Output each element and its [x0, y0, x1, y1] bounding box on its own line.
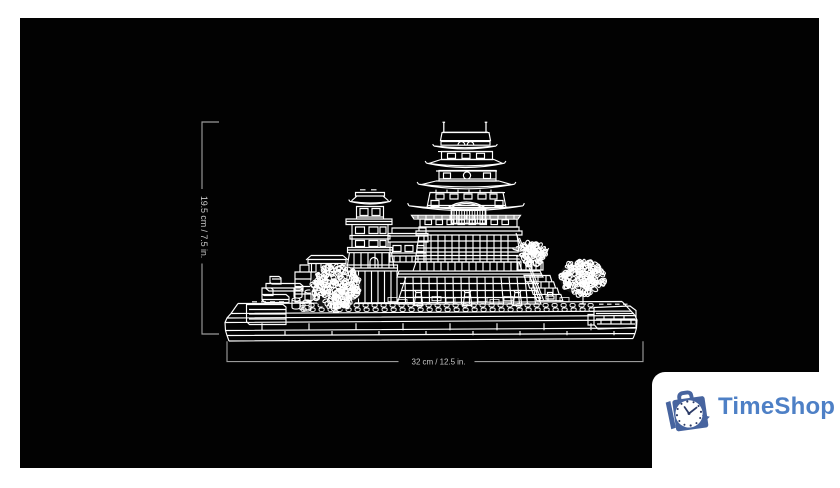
- svg-text:32 cm / 12.5 in.: 32 cm / 12.5 in.: [412, 357, 466, 366]
- svg-text:19.5 cm / 7.5 in.: 19.5 cm / 7.5 in.: [199, 196, 209, 258]
